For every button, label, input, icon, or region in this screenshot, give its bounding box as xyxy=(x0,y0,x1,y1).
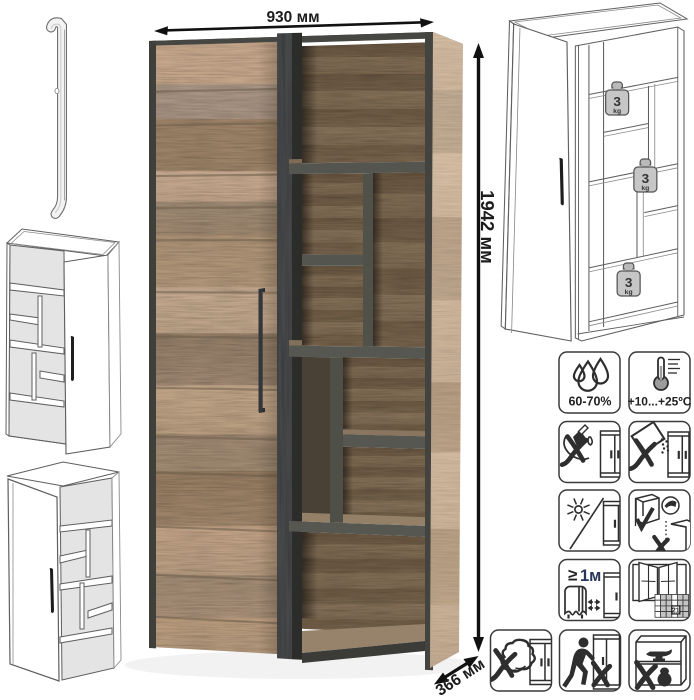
svg-text:+10...+25ºC: +10...+25ºC xyxy=(628,395,692,409)
svg-text:≥: ≥ xyxy=(568,566,577,585)
svg-text:930 мм: 930 мм xyxy=(266,9,319,26)
svg-text:kg: kg xyxy=(625,289,633,296)
svg-text:60-70%: 60-70% xyxy=(568,395,611,409)
svg-text:3: 3 xyxy=(625,275,633,290)
svg-text:1м: 1м xyxy=(580,567,601,585)
svg-text:1942 мм: 1942 мм xyxy=(477,190,498,264)
svg-text:3: 3 xyxy=(613,94,621,109)
svg-text:kg: kg xyxy=(641,185,649,192)
svg-text:3: 3 xyxy=(642,171,650,186)
svg-text:kg: kg xyxy=(613,108,621,115)
svg-text:21: 21 xyxy=(672,607,680,614)
